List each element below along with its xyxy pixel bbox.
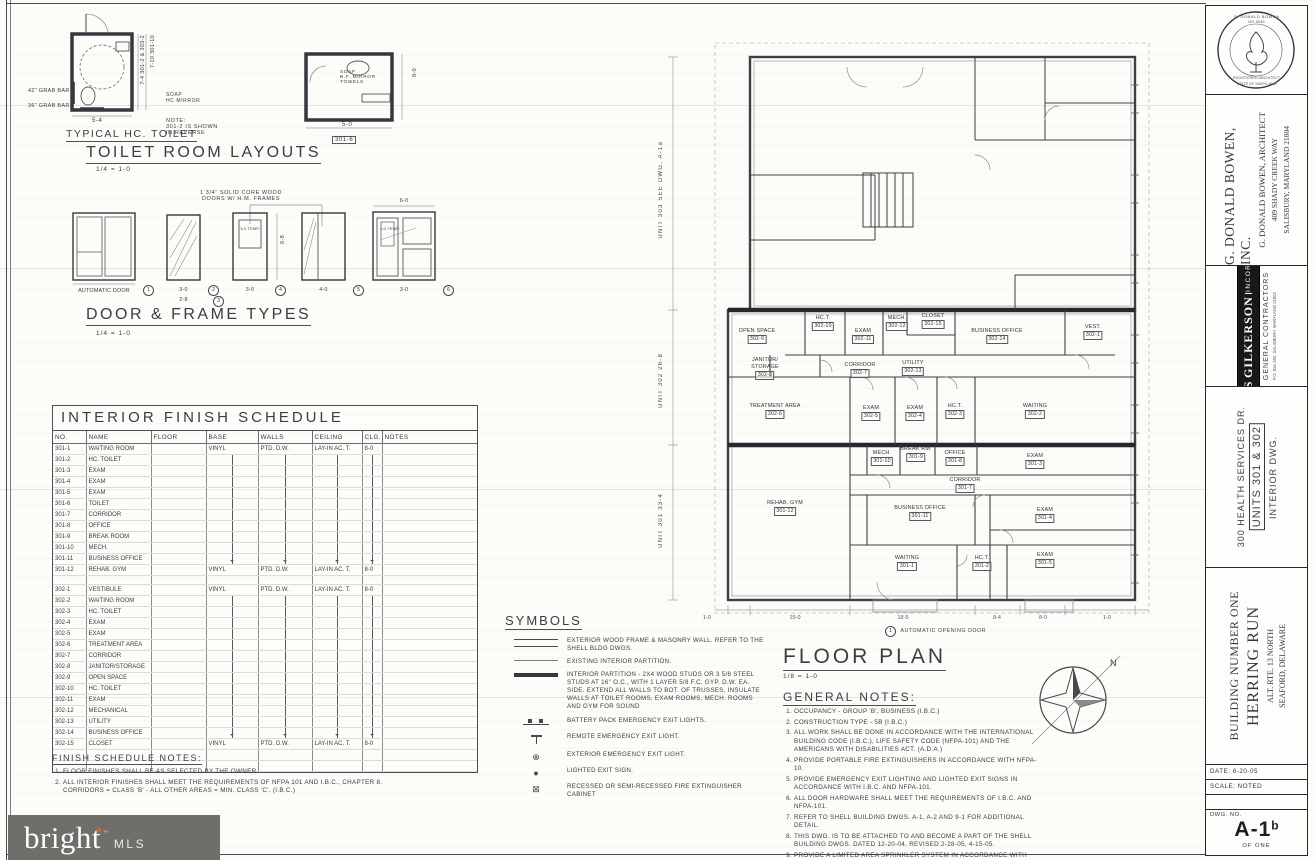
table-cell (312, 455, 362, 466)
room-name: VEST. (1083, 324, 1102, 331)
symbol-description: EXTERIOR EMERGENCY EXIT LIGHT. (567, 751, 767, 759)
room-number-tag: 302-10 (812, 322, 834, 331)
room-label: JANITOR/ STORAGE302-8 (751, 357, 779, 380)
table-cell: HC. TOILET (86, 607, 151, 618)
table-cell (362, 706, 382, 717)
room-name: CORRIDOR (845, 362, 876, 369)
door-type-label: AUTOMATIC DOOR (78, 288, 130, 294)
table-cell (362, 607, 382, 618)
table-row: 302-6TREATMENT AREA (53, 640, 477, 651)
table-cell (382, 565, 477, 576)
table-cell (206, 695, 258, 706)
room-name: UTILITY (902, 360, 924, 367)
table-row: 302-7CORRIDOR (53, 651, 477, 662)
seal-state: STATE OF MARYLAND (1206, 82, 1307, 86)
room-label: EXAM302-5 (861, 405, 880, 421)
door-number-circle: 1 (885, 626, 896, 637)
room-label: CORRIDOR302-7 (845, 362, 876, 378)
architect-seal-section: G. DONALD BOWEN NO. 5045 REGISTERED ARCH… (1206, 6, 1307, 95)
table-cell (312, 466, 362, 477)
sheet-scale: SCALE: NOTED (1206, 780, 1307, 795)
room-label: EXAM301-5 (1035, 552, 1054, 568)
table-row: 302-5EXAM (53, 629, 477, 640)
remote-symbol-icon (505, 735, 567, 746)
column-header: CEILING (312, 431, 362, 444)
table-cell (151, 607, 206, 618)
building-number: BUILDING NUMBER ONE (1227, 591, 1242, 741)
table-cell: LAY-IN AC. T. (312, 585, 362, 596)
dot-symbol-icon: ● (505, 769, 567, 778)
table-cell: 301-8 (53, 521, 86, 532)
room-number-tag: 302-4 (905, 412, 924, 421)
column-header: WALLS (258, 431, 312, 444)
gillis-gilkerson-logo: GILLIS GILKERSON INCORPORATED (1237, 266, 1260, 387)
table-cell (312, 728, 362, 739)
finish-note-item: FLOOR FINISHES SHALL BE AS SELECTED BY T… (63, 768, 472, 777)
table-cell: 302-8 (53, 662, 86, 673)
table-cell: 301-7 (53, 510, 86, 521)
table-cell (206, 521, 258, 532)
room-label: EXAM301-3 (1025, 453, 1044, 469)
architect-address-2: SALISBURY, MARYLAND 21804 (1282, 126, 1291, 234)
general-note-item: OCCUPANCY - GROUP 'B', BUSINESS (I.B.C.) (794, 708, 1045, 717)
table-cell (206, 554, 258, 565)
seal-name: G. DONALD BOWEN (1206, 14, 1307, 19)
building-city: SEAFORD, DELAWARE (1278, 624, 1287, 708)
room-number-tag: 301-9 (906, 453, 925, 462)
general-note-item: ALL WORK SHALL BE DONE IN ACCORDANCE WIT… (794, 729, 1045, 755)
glass-label: 1/4 TEMP. (240, 226, 260, 231)
table-cell (382, 651, 477, 662)
door-type-number: 4 (275, 285, 286, 296)
table-cell (382, 543, 477, 554)
table-cell: EXAM (86, 695, 151, 706)
room-name: HC.T. (972, 555, 991, 562)
table-cell (362, 521, 382, 532)
table-cell: BUSINESS OFFICE (86, 728, 151, 739)
contractor-name-3: INCORPORATED (1245, 266, 1252, 293)
table-cell (151, 455, 206, 466)
table-row: 301-9BREAK ROOM (53, 532, 477, 543)
table-cell: 8-0 (362, 444, 382, 455)
table-cell (86, 576, 151, 585)
room-name: CORRIDOR (950, 477, 981, 484)
architect-address-1: 409 SHADY CREEK WAY (1270, 138, 1279, 221)
table-cell: 301-5 (53, 488, 86, 499)
room-name: OFFICE (945, 450, 966, 457)
bright-logo-text: bright (24, 815, 101, 860)
table-cell (206, 673, 258, 684)
table-cell (382, 488, 477, 499)
table-cell (312, 576, 362, 585)
room-number-tag: 302-9 (747, 335, 766, 344)
table-cell (151, 684, 206, 695)
general-note-item: REFER TO SHELL BUILDING DWGS. A-1, A-2 A… (794, 814, 1045, 831)
room-number-tag: 301-5 (1035, 559, 1054, 568)
table-cell (206, 607, 258, 618)
room-name: EXAM (852, 328, 874, 335)
table-cell: WAITING ROOM (86, 444, 151, 455)
building-name-section: BUILDING NUMBER ONE HERRING RUN ALT. RTE… (1206, 568, 1307, 765)
table-cell (206, 532, 258, 543)
table-cell (258, 576, 312, 585)
door-frame-types-scale: 1/4 = 1-0 (96, 330, 131, 337)
door-frame-types-title: DOOR & FRAME TYPES (86, 306, 311, 326)
unit-dimension-label: UNIT 301 33-4 (653, 455, 669, 585)
symbol-description: RECESSED OR SEMI-RECESSED FIRE EXTINGUIS… (567, 783, 767, 799)
table-cell: MECHANICAL (86, 706, 151, 717)
table-cell (151, 728, 206, 739)
wall-single-glyph (514, 660, 558, 661)
room-label: VEST.302-1 (1083, 324, 1102, 340)
room-label: EXAM302-11 (852, 328, 874, 344)
table-cell (258, 662, 312, 673)
unit-dimension-label: UNIT 303 SEE DWG. A-1a (653, 125, 669, 255)
room-name: TREATMENT AREA (749, 403, 800, 410)
architect-info-section: G. DONALD BOWEN, INC. G. DONALD BOWEN, A… (1206, 95, 1307, 266)
unit-dimension-text: UNIT 301 33-4 (658, 493, 664, 548)
room-label: WAITING301-1 (895, 555, 919, 571)
table-row: 301-10MECH. (53, 543, 477, 554)
table-cell (206, 510, 258, 521)
dimension-value: 8-0 (1039, 615, 1047, 621)
floor-plan-labels-layer: OPEN SPACE302-9HC.T.302-10EXAM302-11MECH… (645, 25, 1215, 645)
table-cell (206, 596, 258, 607)
table-cell (362, 488, 382, 499)
table-cell (362, 499, 382, 510)
table-cell (258, 629, 312, 640)
table-cell (151, 673, 206, 684)
table-cell (258, 455, 312, 466)
table-cell (312, 521, 362, 532)
table-cell (206, 488, 258, 499)
table-row-blank (53, 576, 477, 585)
symbol-row: ⊠RECESSED OR SEMI-RECESSED FIRE EXTINGUI… (505, 783, 785, 799)
room-name: BUSINESS OFFICE (894, 505, 946, 512)
table-cell (312, 651, 362, 662)
table-cell (151, 596, 206, 607)
table-cell: TOILET (86, 499, 151, 510)
bright-spark-icon: * (96, 824, 102, 841)
project-dwg-type: INTERIOR DWG. (1268, 436, 1278, 519)
contractor-section: GILLIS GILKERSON INCORPORATED GENERAL CO… (1206, 266, 1307, 387)
table-row: 302-9OPEN SPACE (53, 673, 477, 684)
table-cell (151, 466, 206, 477)
contractor-name-2: GILKERSON (1241, 295, 1256, 377)
table-row: 302-4EXAM (53, 618, 477, 629)
table-cell (362, 728, 382, 739)
table-cell (312, 662, 362, 673)
table-cell: 302-3 (53, 607, 86, 618)
table-cell (312, 640, 362, 651)
table-cell (312, 543, 362, 554)
table-cell (258, 651, 312, 662)
auto-door-note: 1 AUTOMATIC OPENING DOOR (885, 619, 986, 637)
table-row: 301-12REHAB. GYMVINYLPTD. D.W.LAY-IN AC.… (53, 565, 477, 576)
room-name: MECH. (886, 315, 908, 322)
room-number-tag: 301-12 (774, 507, 796, 516)
table-cell (151, 662, 206, 673)
room-name: BUSINESS OFFICE (971, 328, 1023, 335)
table-cell (382, 640, 477, 651)
table-cell (362, 695, 382, 706)
table-cell (151, 510, 206, 521)
floor-plan: OPEN SPACE302-9HC.T.302-10EXAM302-11MECH… (645, 25, 1215, 645)
room-number-tag: 302-14 (986, 335, 1008, 344)
table-cell (382, 662, 477, 673)
table-cell: VINYL (206, 444, 258, 455)
general-note-item: PROVIDE PORTABLE FIRE EXTINGUISHERS IN A… (794, 757, 1045, 774)
symbol-description: INTERIOR PARTITION - 2x4 WOOD STUDS OR 3… (567, 671, 767, 711)
room-number-tag: 302-7 (850, 369, 869, 378)
contractor-role: GENERAL CONTRACTORS (1263, 272, 1270, 380)
table-cell: TREATMENT AREA (86, 640, 151, 651)
table-row: 301-7CORRIDOR (53, 510, 477, 521)
table-cell (312, 488, 362, 499)
table-cell (206, 684, 258, 695)
table-cell (258, 728, 312, 739)
room-name: BREAK RM. (900, 446, 931, 453)
table-cell (206, 706, 258, 717)
sheet-date: DATE: 6-20-05 (1206, 765, 1307, 780)
room-label: REHAB. GYM301-12 (767, 500, 803, 516)
table-cell: PTD. D.W. (258, 444, 312, 455)
table-cell: 8-0 (362, 585, 382, 596)
door-dimension: 4-0 (319, 287, 327, 293)
table-cell (382, 510, 477, 521)
table-cell (206, 455, 258, 466)
table-cell (382, 706, 477, 717)
finish-schedule-header-row: NO.NAMEFLOORBASEWALLSCEILINGCLG.NOTES (53, 431, 477, 444)
table-cell (362, 532, 382, 543)
table-cell (258, 673, 312, 684)
table-row: 302-13UTILITY (53, 717, 477, 728)
square-x-glyph: ⊠ (532, 785, 540, 794)
table-cell (382, 585, 477, 596)
symbol-description: BATTERY PACK EMERGENCY EXIT LIGHTS. (567, 717, 767, 725)
table-cell: 302-12 (53, 706, 86, 717)
room-number-tag: 302-2 (1025, 410, 1044, 419)
table-cell (382, 728, 477, 739)
table-cell: BUSINESS OFFICE (86, 554, 151, 565)
table-row: 301-3EXAM (53, 466, 477, 477)
table-cell (258, 499, 312, 510)
wall-double-symbol-icon (505, 639, 567, 647)
square-x-symbol-icon: ⊠ (505, 785, 567, 794)
room-label: HC.T.301-2 (972, 555, 991, 571)
dot-glyph: ● (533, 769, 538, 778)
table-cell (258, 618, 312, 629)
table-cell: 302-13 (53, 717, 86, 728)
table-cell (312, 695, 362, 706)
room-number-tag: 302-15 (922, 320, 944, 329)
room-label: EXAM302-4 (905, 405, 924, 421)
table-cell: 301-9 (53, 532, 86, 543)
table-cell (362, 510, 382, 521)
room-name: EXAM (861, 405, 880, 412)
table-cell: REHAB. GYM (86, 565, 151, 576)
column-header: CLG. (362, 431, 382, 444)
table-cell (312, 673, 362, 684)
dimension-value: 8-4 (993, 615, 1001, 621)
sheet-blank-row (1206, 795, 1307, 810)
table-cell (151, 554, 206, 565)
table-cell (206, 662, 258, 673)
column-header: BASE (206, 431, 258, 444)
table-cell (258, 466, 312, 477)
table-cell (382, 455, 477, 466)
general-notes-section: GENERAL NOTES: OCCUPANCY - GROUP 'B', BU… (783, 688, 1045, 860)
table-cell: 302-11 (53, 695, 86, 706)
sheet-number: A-1b (1206, 818, 1307, 842)
table-cell (362, 684, 382, 695)
general-note-item: ALL DOOR HARDWARE SHALL MEET THE REQUIRE… (794, 795, 1045, 812)
room-number-tag: 301-7 (955, 484, 974, 493)
table-cell: 301-2 (53, 455, 86, 466)
table-cell (258, 596, 312, 607)
room-name: EXAM (905, 405, 924, 412)
dimension-value: 1-0 (703, 615, 711, 621)
table-cell (312, 684, 362, 695)
table-cell (206, 576, 258, 585)
symbols-title: SYMBOLS (505, 613, 582, 630)
table-cell (362, 651, 382, 662)
table-cell (206, 651, 258, 662)
door-dimension: 2-8 (179, 297, 187, 303)
table-cell (258, 554, 312, 565)
mls-logo-text: MLS (114, 837, 146, 851)
table-cell (258, 695, 312, 706)
table-row: 301-4EXAM (53, 477, 477, 488)
table-row: 302-10HC. TOILET (53, 684, 477, 695)
finish-schedule-notes: FINISH SCHEDULE NOTES: FLOOR FINISHES SH… (52, 748, 472, 798)
table-cell (382, 607, 477, 618)
room-label: CORRIDOR301-7 (950, 477, 981, 493)
unit-dimension-text: UNIT 302 26-8 (658, 353, 664, 408)
room-name: HC.T. (945, 403, 964, 410)
floor-plan-title-block: FLOOR PLAN 1/8 = 1-0 (783, 645, 946, 680)
symbol-row: EXISTING INTERIOR PARTITION. (505, 658, 785, 666)
room-number-tag: 302-6 (765, 410, 784, 419)
door-type-number: 1 (143, 285, 154, 296)
table-cell: 301-4 (53, 477, 86, 488)
table-row: 301-11BUSINESS OFFICE (53, 554, 477, 565)
table-cell (382, 695, 477, 706)
room-number-tag: 302-13 (902, 367, 924, 376)
table-cell (382, 629, 477, 640)
general-note-item: PROVIDE A LIMITED AREA SPRINKLER SYSTEM … (794, 852, 1045, 860)
room-number-tag: 302-1 (1083, 331, 1102, 340)
table-cell (312, 629, 362, 640)
table-cell: VESTIBULE (86, 585, 151, 596)
room-number-tag: 302-12 (886, 322, 908, 331)
table-cell: EXAM (86, 466, 151, 477)
table-cell: WAITING ROOM (86, 596, 151, 607)
room-number-tag: 302-3 (945, 410, 964, 419)
table-cell (151, 695, 206, 706)
table-cell: HC. TOILET (86, 684, 151, 695)
table-cell (151, 543, 206, 554)
table-cell (312, 510, 362, 521)
table-cell (382, 684, 477, 695)
architect-subtitle: G. DONALD BOWEN, ARCHITECT (1257, 112, 1267, 248)
blueprint-sheet: 42" GRAB BAR 36" GRAB BAR 5-4 7-4 301-2 … (0, 0, 1315, 860)
project-info-section: 300 HEALTH SERVICES DR. UNITS 301 & 302 … (1206, 387, 1307, 568)
table-cell (312, 607, 362, 618)
sheet-info-section: DATE: 6-20-05 SCALE: NOTED DWG. NO. A-1b… (1206, 765, 1307, 856)
room-label: BUSINESS OFFICE301-11 (894, 505, 946, 521)
general-notes-title: GENERAL NOTES: (783, 690, 916, 706)
symbol-description: EXISTING INTERIOR PARTITION. (567, 658, 767, 666)
table-cell (151, 499, 206, 510)
table-cell (258, 488, 312, 499)
title-block: G. DONALD BOWEN NO. 5045 REGISTERED ARCH… (1205, 5, 1308, 856)
floor-plan-title: FLOOR PLAN (783, 645, 946, 671)
room-name: EXAM (1035, 552, 1054, 559)
room-number-tag: 301-8 (945, 457, 964, 466)
room-label: EXAM301-4 (1035, 507, 1054, 523)
unit-dimension-label: UNIT 302 26-8 (653, 315, 669, 445)
architect-name: G. DONALD BOWEN, INC. (1222, 95, 1254, 265)
seal-registered: REGISTERED ARCHITECT (1206, 76, 1307, 80)
room-name: JANITOR/ STORAGE (751, 357, 779, 371)
sheet-number-suffix: b (1271, 819, 1278, 833)
north-label: N (1110, 658, 1117, 668)
unit-dimension-text: UNIT 303 SEE DWG. A-1a (658, 141, 664, 239)
table-cell (258, 477, 312, 488)
auto-door-note-text: AUTOMATIC OPENING DOOR (900, 628, 986, 634)
table-cell (258, 543, 312, 554)
table-cell: EXAM (86, 618, 151, 629)
table-cell (151, 706, 206, 717)
table-cell (362, 576, 382, 585)
table-row: 302-12MECHANICAL (53, 706, 477, 717)
table-cell: LAY-IN AC. T. (312, 565, 362, 576)
general-note-item: PROVIDE EMERGENCY EXIT LIGHTING AND LIGH… (794, 776, 1045, 793)
table-cell (362, 543, 382, 554)
table-cell (382, 596, 477, 607)
table-cell (151, 629, 206, 640)
general-notes-list: OCCUPANCY - GROUP 'B', BUSINESS (I.B.C.)… (783, 708, 1045, 860)
table-row: 302-1VESTIBULEVINYLPTD. D.W.LAY-IN AC. T… (53, 585, 477, 596)
symbol-description: LIGHTED EXIT SIGN. (567, 767, 767, 775)
sheet-of: OF ONE (1206, 843, 1307, 849)
door-dimension: 3-0 (246, 287, 254, 293)
table-cell: 301-10 (53, 543, 86, 554)
table-cell (382, 673, 477, 684)
interior-finish-schedule: INTERIOR FINISH SCHEDULE NO.NAMEFLOORBAS… (52, 405, 478, 773)
table-cell: EXAM (86, 488, 151, 499)
table-cell (382, 554, 477, 565)
circle-x-symbol-icon: ⊗ (505, 753, 567, 762)
table-cell (382, 618, 477, 629)
table-cell: 302-5 (53, 629, 86, 640)
project-address: 300 HEALTH SERVICES DR. (1236, 406, 1246, 547)
door-dimension: 6-0 (400, 198, 408, 204)
table-cell: 301-1 (53, 444, 86, 455)
door-dimension: 3-0 (400, 287, 408, 293)
table-cell: PTD. D.W. (258, 585, 312, 596)
finish-note-item: ALL INTERIOR FINISHES SHALL MEET THE REQ… (63, 779, 472, 796)
finish-schedule-title: INTERIOR FINISH SCHEDULE (53, 406, 477, 431)
table-cell (206, 477, 258, 488)
table-cell (258, 532, 312, 543)
room-label: TREATMENT AREA302-6 (749, 403, 800, 419)
table-row: 302-3HC. TOILET (53, 607, 477, 618)
table-cell (53, 576, 86, 585)
table-cell: 302-10 (53, 684, 86, 695)
table-cell (151, 521, 206, 532)
